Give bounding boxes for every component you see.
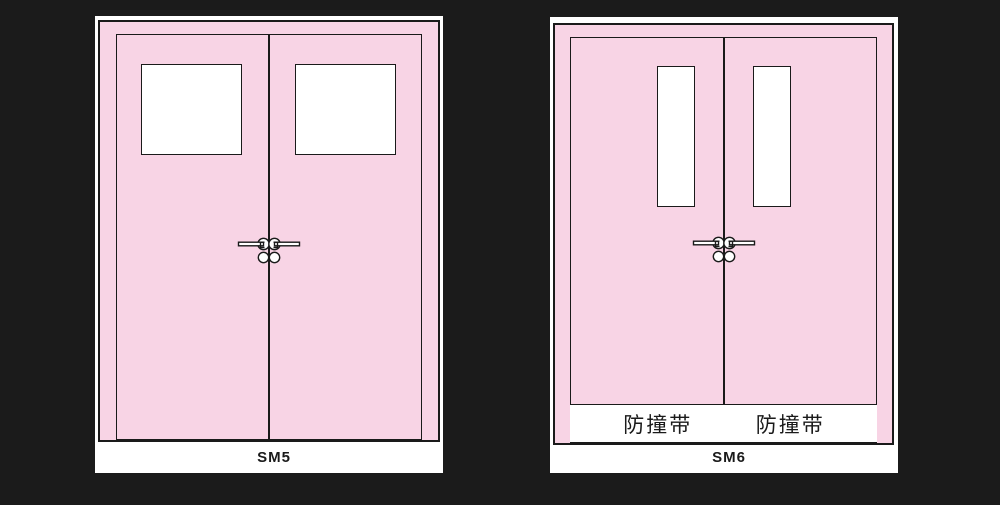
lock-cylinder-right	[269, 252, 279, 262]
lever-handle-right	[729, 241, 754, 245]
diagram-label: SM6	[555, 449, 903, 466]
vision-window	[295, 64, 396, 155]
vision-window	[141, 64, 242, 155]
lock-cylinder-right	[724, 251, 734, 261]
bumper-strip: 防撞带	[724, 404, 878, 442]
lever-handle-left	[693, 241, 718, 245]
bumper-strip-label: 防撞带	[623, 409, 692, 439]
door-handle-icon	[237, 234, 301, 266]
lock-cylinder-left	[258, 252, 268, 262]
lock-cylinder-left	[713, 251, 723, 261]
door-diagram-sm5: SM5	[95, 16, 443, 473]
lever-handle-right	[275, 242, 300, 246]
door-drawing-canvas: SM5 防撞带 防撞带	[0, 0, 1000, 505]
door-frame	[98, 20, 440, 442]
vision-window	[753, 66, 791, 207]
vision-window	[657, 66, 695, 207]
door-handle-icon	[692, 233, 756, 265]
bumper-strip: 防撞带	[570, 404, 724, 442]
lever-handle-left	[239, 242, 264, 246]
door-frame: 防撞带 防撞带	[553, 23, 894, 445]
bumper-strip-label: 防撞带	[756, 409, 825, 439]
door-diagram-sm6: 防撞带 防撞带 SM6	[550, 17, 898, 473]
diagram-label: SM5	[100, 449, 448, 466]
